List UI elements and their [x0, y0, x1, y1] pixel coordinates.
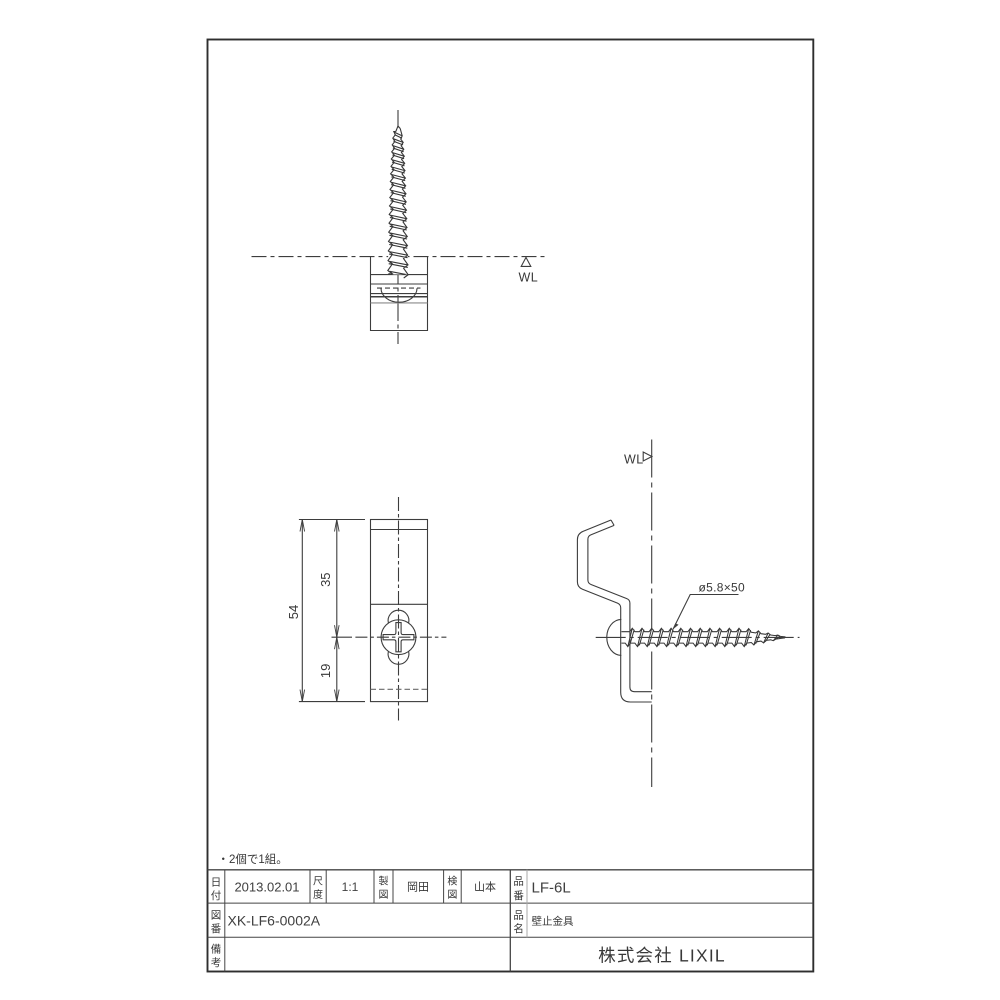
svg-text:壁止金具: 壁止金具	[532, 915, 574, 928]
svg-text:備: 備	[211, 943, 222, 956]
svg-text:検: 検	[447, 875, 457, 888]
svg-text:番: 番	[211, 923, 222, 935]
svg-text:19: 19	[318, 664, 333, 678]
svg-text:度: 度	[313, 888, 323, 901]
svg-text:株式会社 LIXIL: 株式会社 LIXIL	[598, 946, 726, 966]
svg-text:35: 35	[318, 572, 333, 586]
svg-text:山本: 山本	[474, 880, 496, 894]
svg-text:名: 名	[513, 922, 524, 935]
svg-text:XK-LF6-0002A: XK-LF6-0002A	[228, 913, 321, 929]
svg-text:岡田: 岡田	[407, 882, 429, 894]
svg-text:54: 54	[286, 605, 301, 619]
svg-text:LF-6L: LF-6L	[532, 880, 571, 897]
svg-text:製: 製	[379, 875, 389, 888]
svg-text:・2個で1組。: ・2個で1組。	[218, 853, 288, 866]
svg-text:2013.02.01: 2013.02.01	[234, 880, 299, 895]
svg-text:日: 日	[211, 877, 222, 889]
svg-text:図: 図	[447, 889, 457, 901]
svg-text:付: 付	[211, 889, 222, 902]
svg-text:WL: WL	[519, 271, 539, 285]
svg-text:図: 図	[379, 889, 389, 901]
svg-text:品: 品	[513, 910, 524, 922]
svg-text:考: 考	[211, 957, 222, 969]
svg-text:品: 品	[513, 876, 524, 888]
svg-text:尺: 尺	[313, 876, 323, 888]
svg-text:番: 番	[513, 890, 524, 902]
svg-text:1:1: 1:1	[342, 880, 359, 894]
svg-text:図: 図	[211, 910, 222, 922]
svg-text:ø5.8×50: ø5.8×50	[699, 581, 745, 595]
svg-text:WL: WL	[624, 453, 644, 467]
